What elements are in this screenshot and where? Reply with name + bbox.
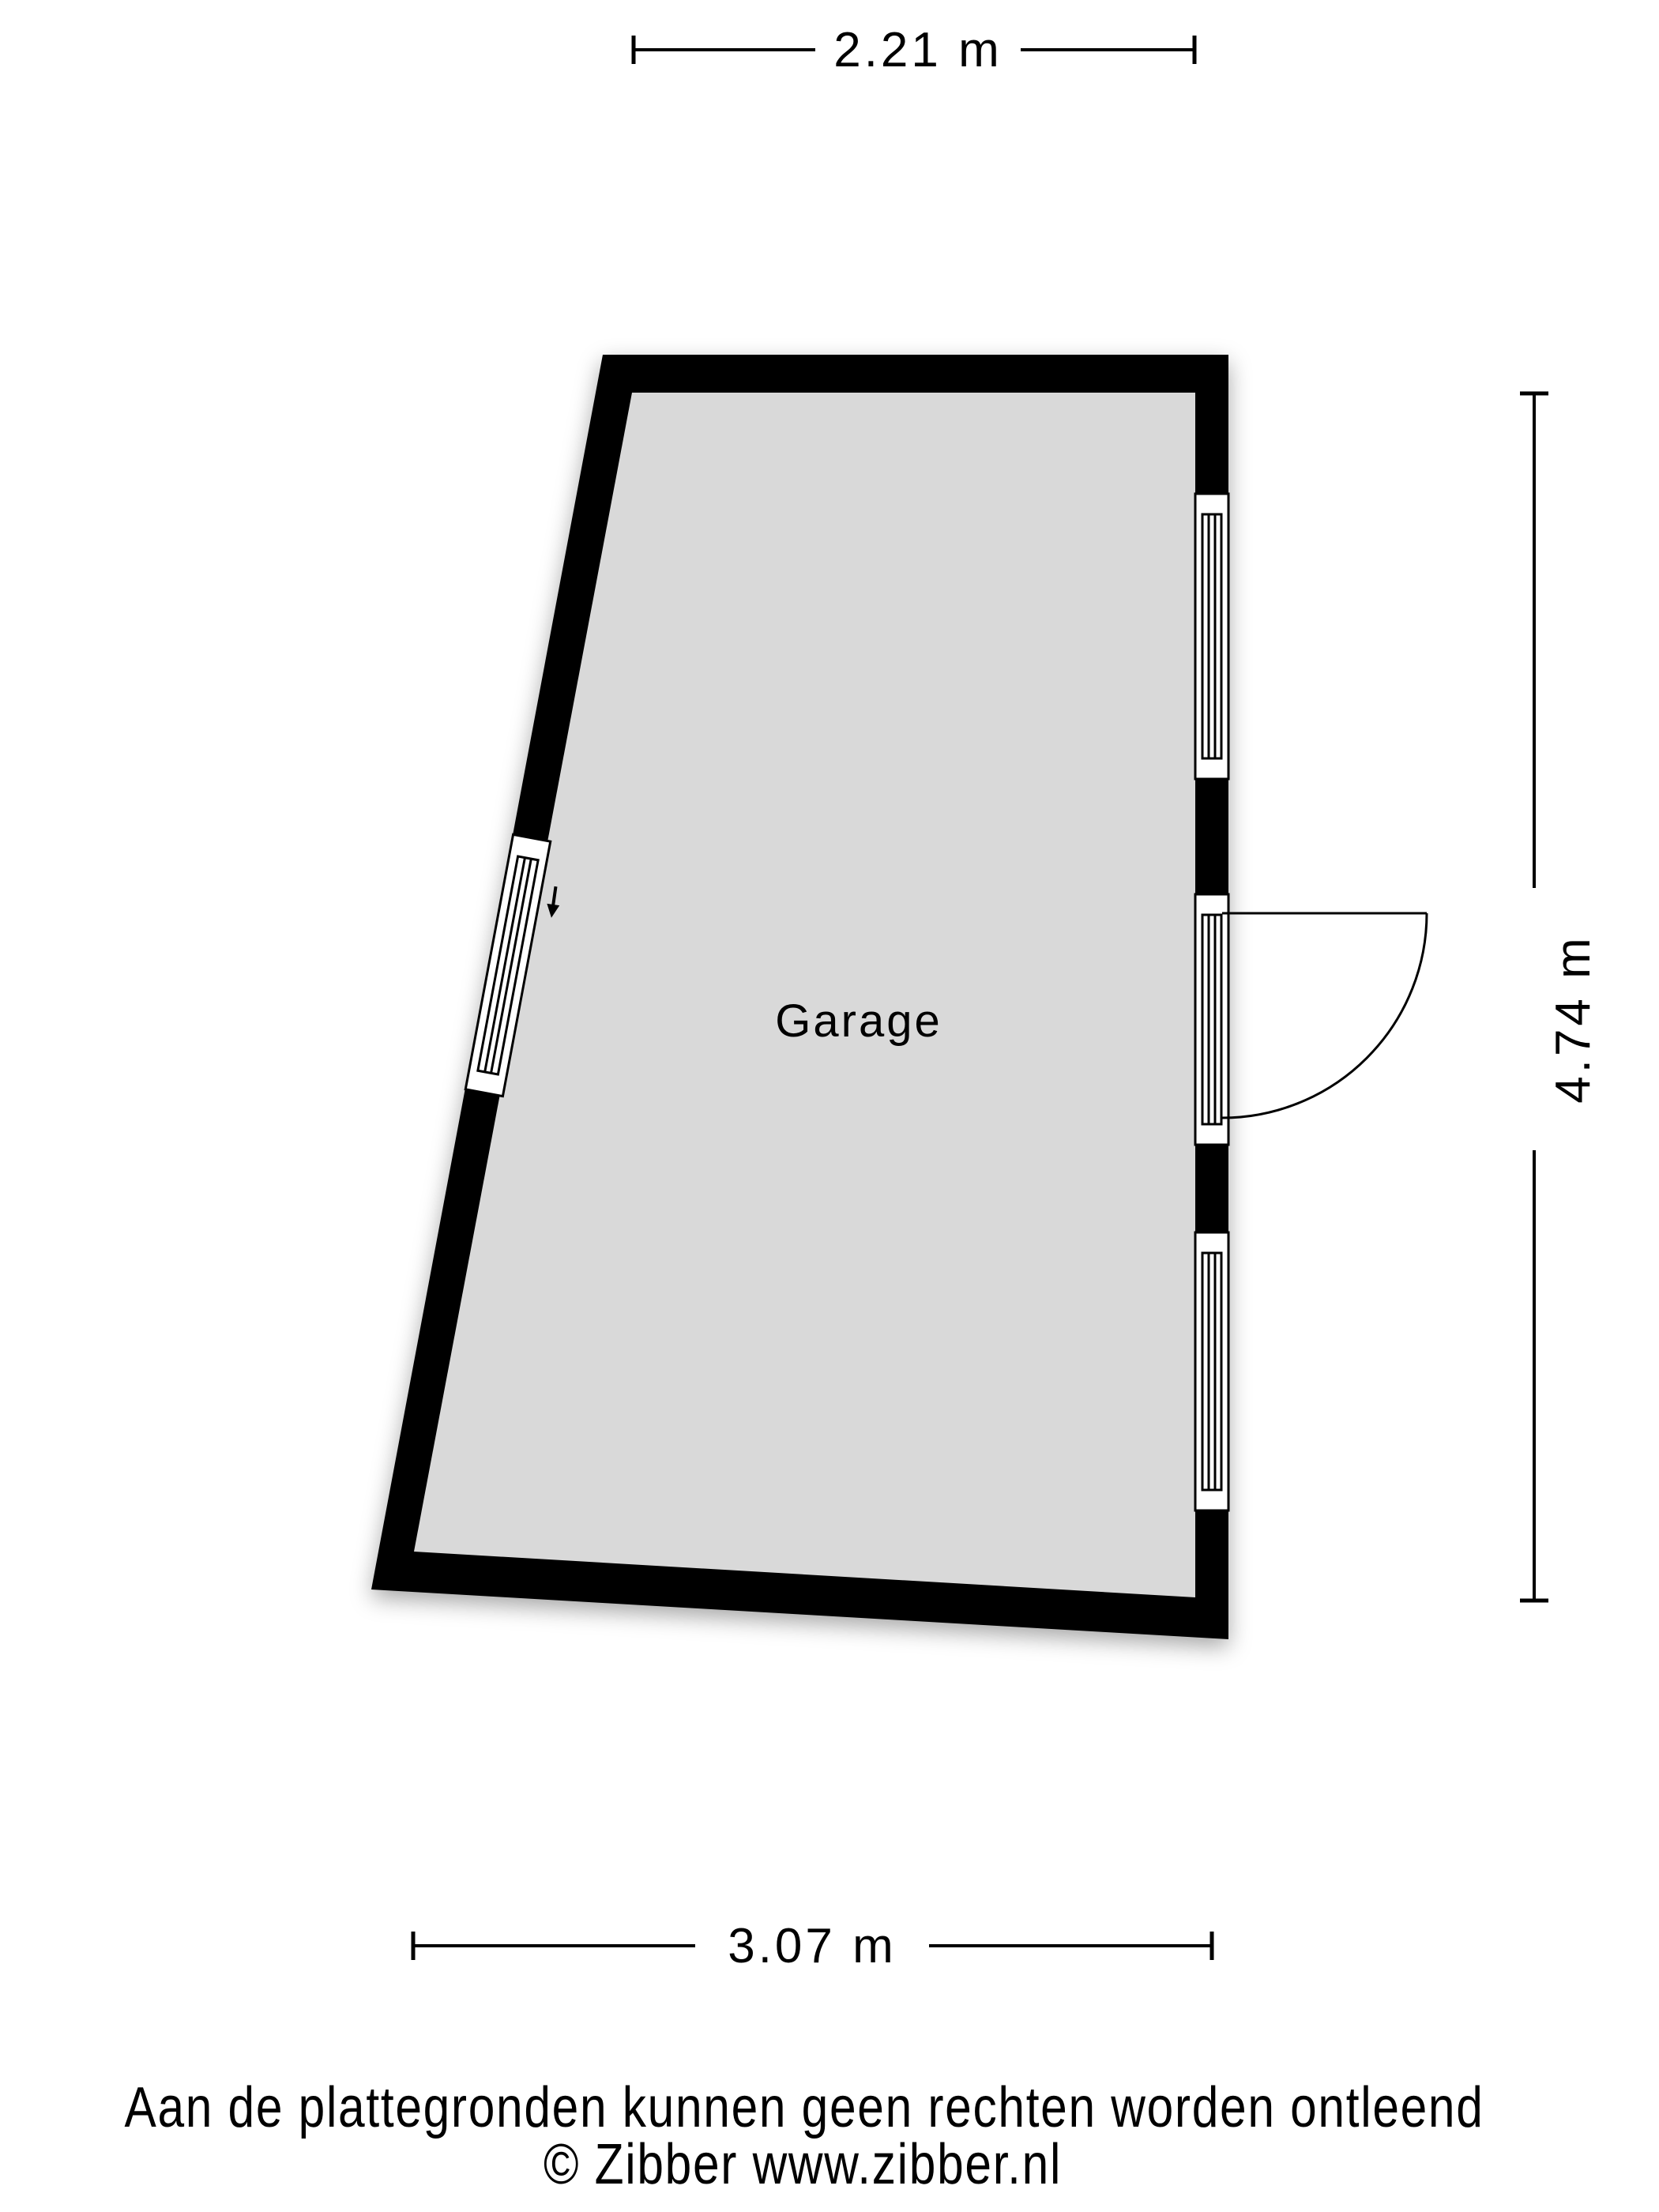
footer-disclaimer: Aan de plattegronden kunnen geen rechten… (124, 2076, 1484, 2139)
window-right-top (1195, 494, 1228, 779)
floor-plan-canvas: 2.21 m (0, 0, 1659, 2212)
room-label: Garage (775, 995, 942, 1047)
dimension-top-label: 2.21 m (833, 23, 1003, 77)
dimension-right-label: 4.74 m (1546, 935, 1601, 1104)
window-right-bottom (1195, 1232, 1228, 1510)
dimension-bottom-label: 3.07 m (728, 1919, 897, 1973)
footer-copyright: © Zibber www.zibber.nl (544, 2133, 1062, 2196)
